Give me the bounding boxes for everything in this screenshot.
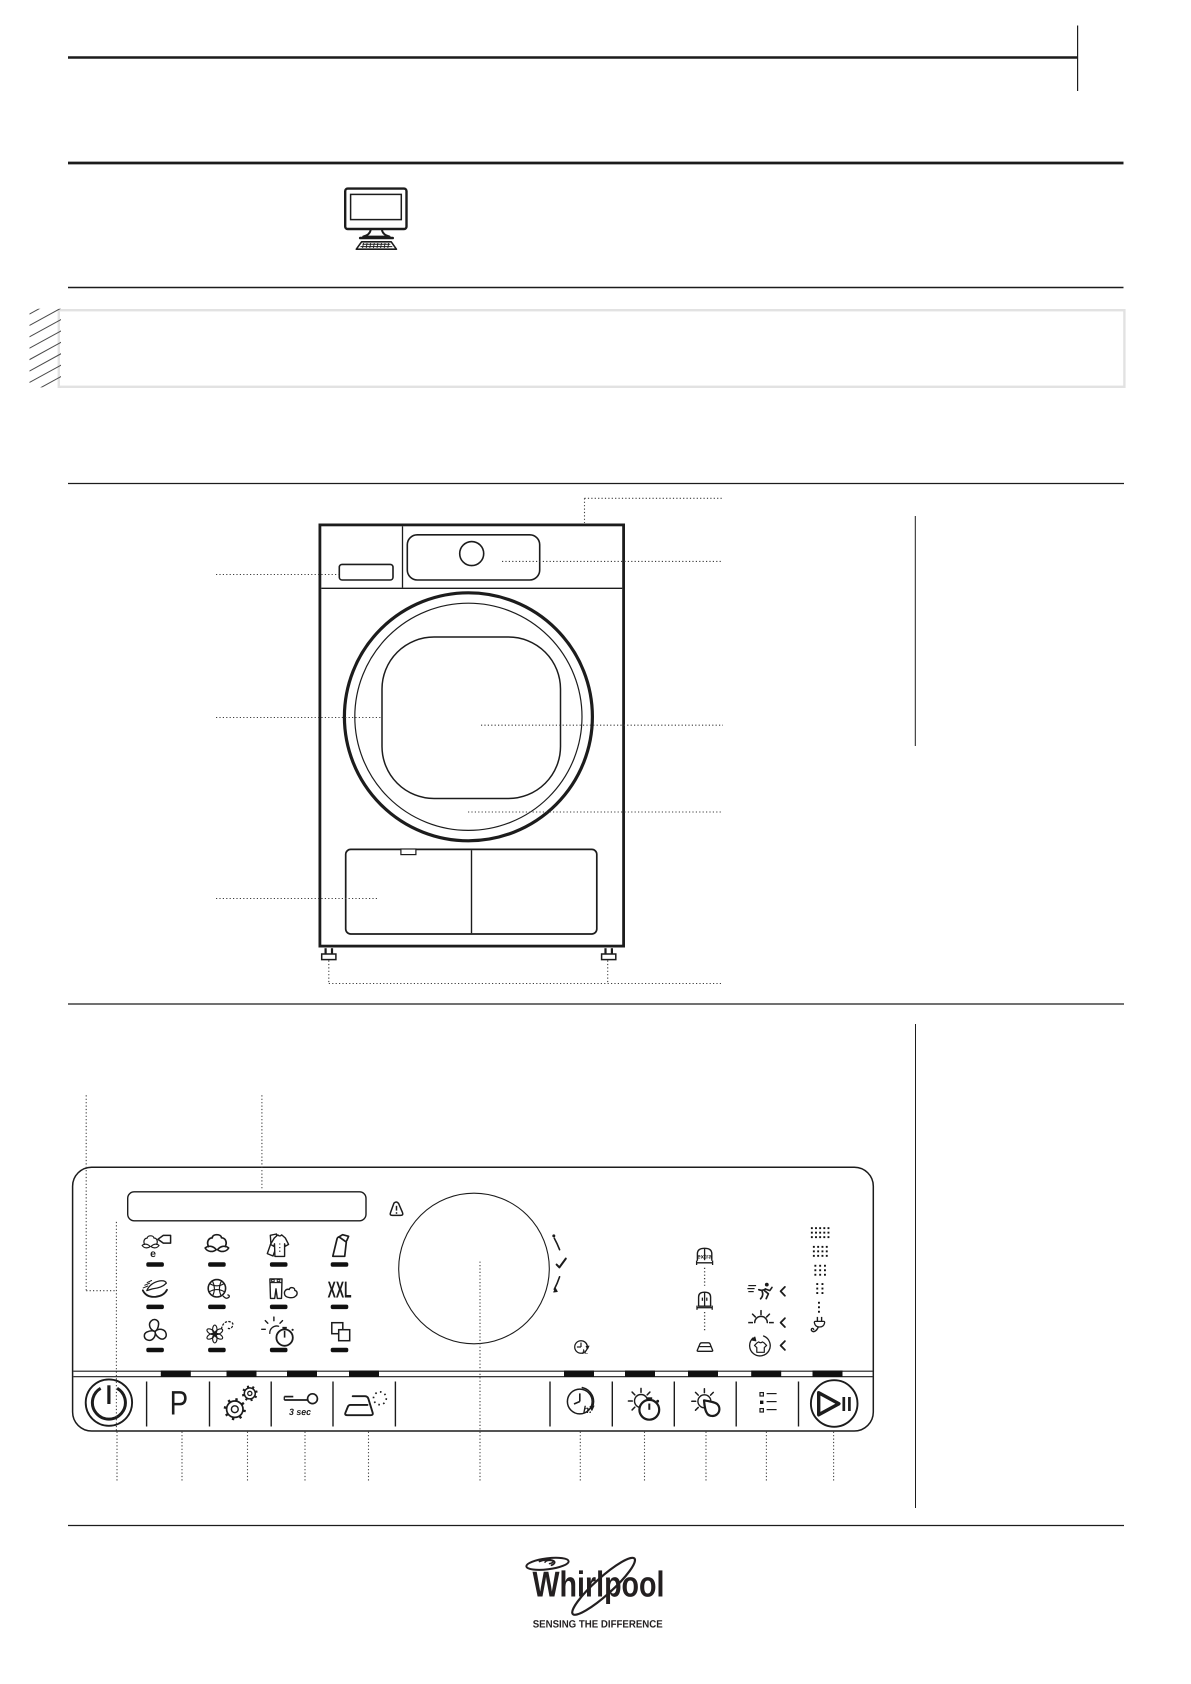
svg-text:Whirlpool: Whirlpool [533,1564,665,1605]
svg-text:3 sec: 3 sec [289,1407,311,1417]
svg-text:P: P [170,1385,189,1423]
svg-text:h.: h. [583,1405,592,1416]
svg-text:h.: h. [582,1349,588,1356]
svg-text:XXL: XXL [328,1276,352,1302]
svg-text:SENSING THE DIFFERENCE: SENSING THE DIFFERENCE [533,1619,663,1631]
svg-text:extra: extra [697,1254,712,1261]
svg-text:e: e [150,1248,156,1260]
